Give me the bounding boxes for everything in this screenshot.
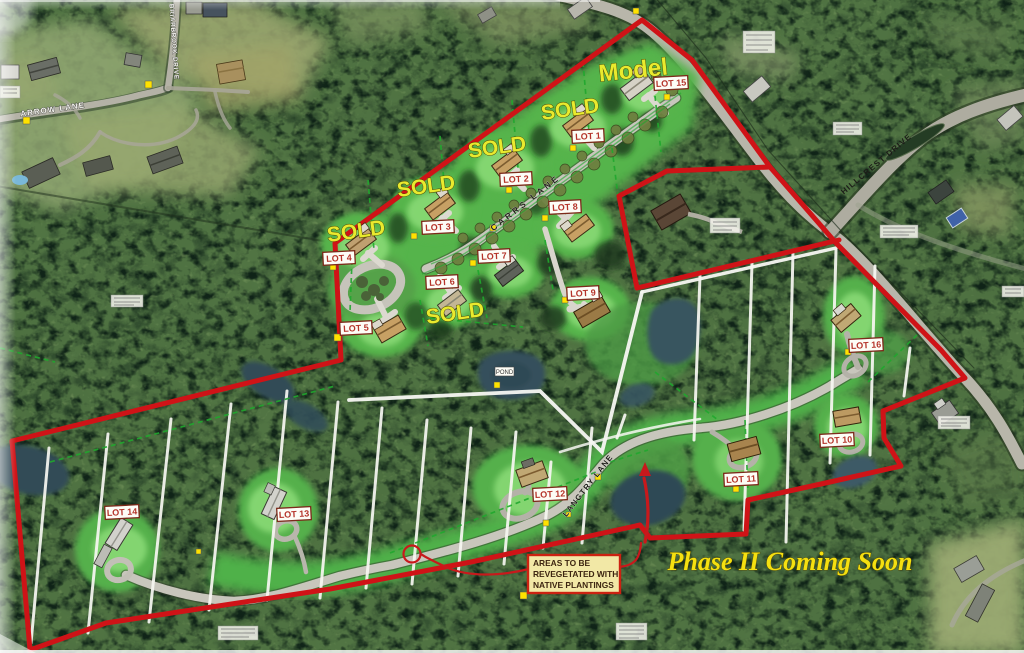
svg-text:LOT 6: LOT 6 <box>429 277 455 288</box>
svg-text:LOT 5: LOT 5 <box>343 323 369 334</box>
svg-text:LOT 3: LOT 3 <box>425 222 451 233</box>
svg-text:LOT 1: LOT 1 <box>575 131 601 142</box>
svg-text:Phase II Coming Soon: Phase II Coming Soon <box>667 547 913 576</box>
svg-text:LOT 15: LOT 15 <box>656 77 687 89</box>
svg-text:LOT 7: LOT 7 <box>481 251 507 262</box>
svg-text:REVEGETATED WITH: REVEGETATED WITH <box>533 569 618 579</box>
svg-text:NATIVE PLANTINGS: NATIVE PLANTINGS <box>533 580 614 590</box>
svg-text:LOT 12: LOT 12 <box>535 488 566 500</box>
svg-text:AREAS TO BE: AREAS TO BE <box>533 558 590 568</box>
svg-text:LOT 8: LOT 8 <box>552 202 578 213</box>
svg-text:LOT 9: LOT 9 <box>570 288 596 299</box>
svg-text:LOT 4: LOT 4 <box>326 253 352 264</box>
svg-text:LOT 13: LOT 13 <box>279 508 310 520</box>
svg-text:LOT 11: LOT 11 <box>726 473 756 485</box>
svg-text:LOT 14: LOT 14 <box>107 506 138 518</box>
svg-text:POND: POND <box>496 370 514 376</box>
svg-text:LOT 16: LOT 16 <box>851 339 882 351</box>
svg-text:LOT 2: LOT 2 <box>503 174 529 185</box>
svg-text:LOT 10: LOT 10 <box>822 434 853 446</box>
